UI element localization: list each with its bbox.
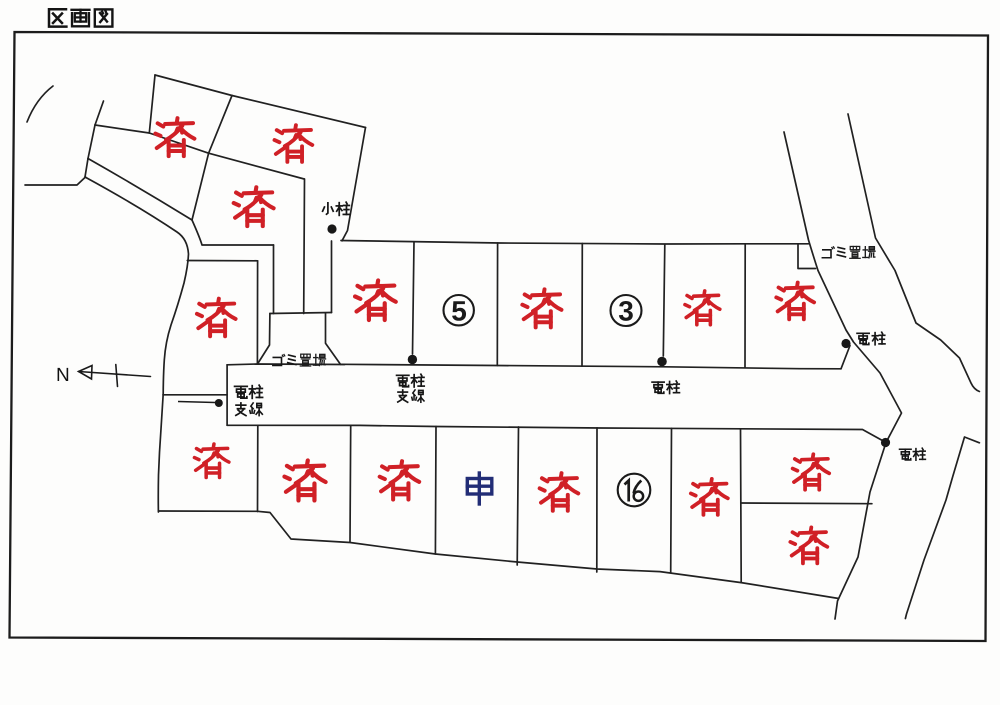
svg-text:5: 5: [451, 295, 467, 326]
svg-text:3: 3: [618, 296, 634, 327]
svg-text:N: N: [56, 365, 70, 386]
